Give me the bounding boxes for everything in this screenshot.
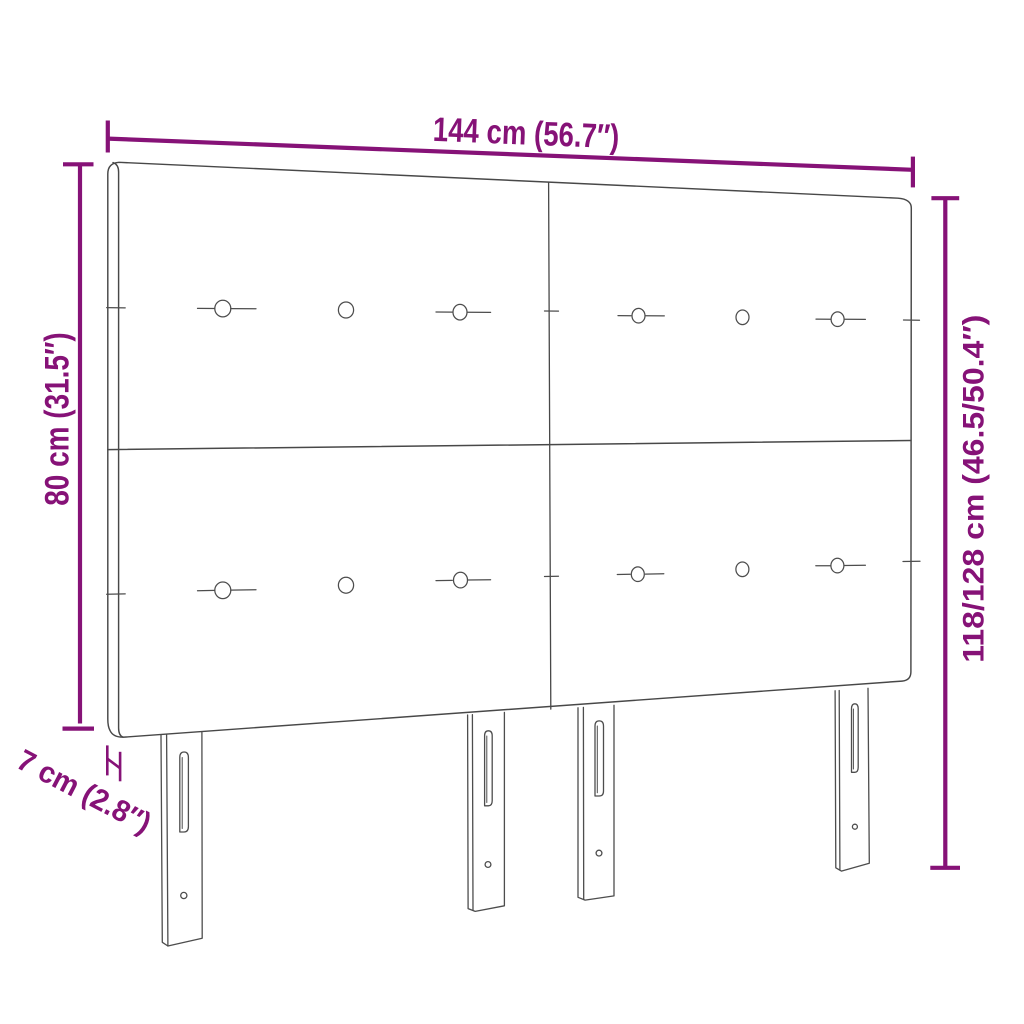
svg-text:118/128 cm (46.5/50.4″): 118/128 cm (46.5/50.4″) [958, 315, 991, 663]
svg-text:144 cm (56.7″): 144 cm (56.7″) [432, 111, 620, 156]
svg-text:80 cm (31.5″): 80 cm (31.5″) [39, 332, 77, 506]
